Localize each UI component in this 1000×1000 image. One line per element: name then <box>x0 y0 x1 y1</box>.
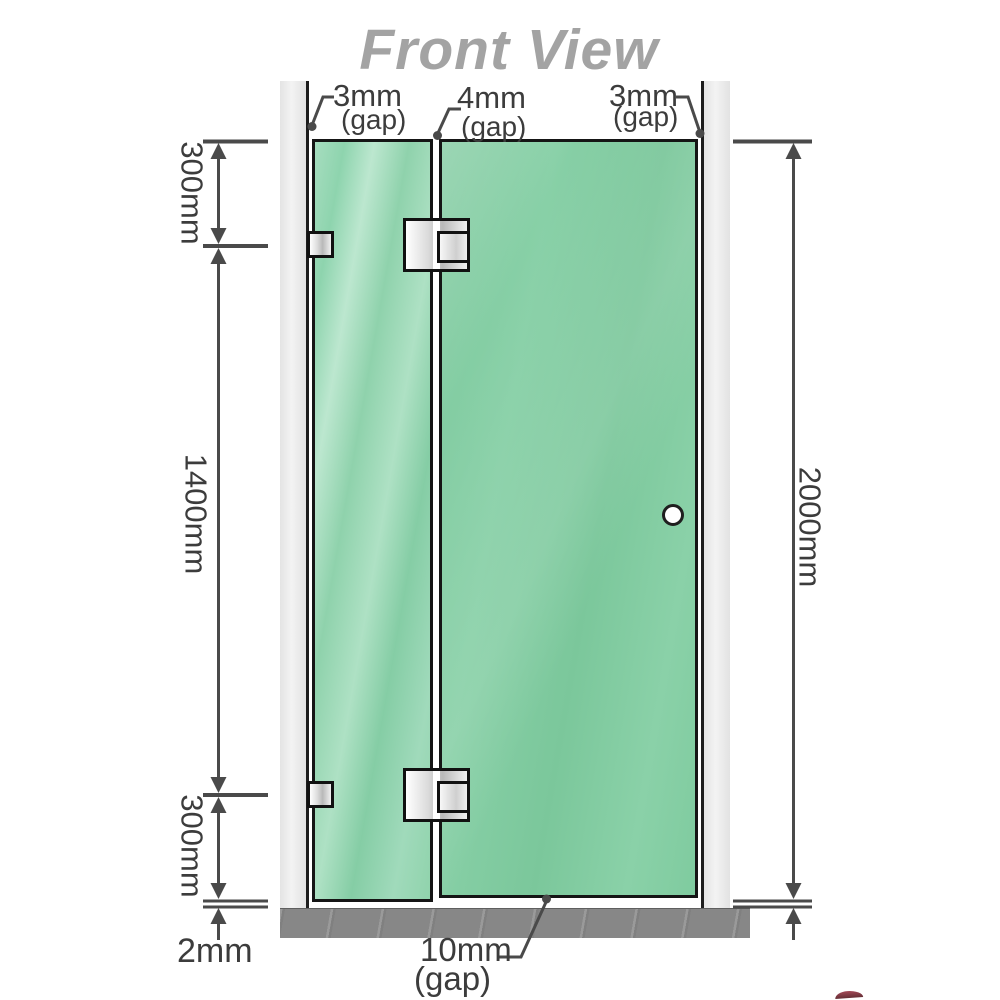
gap-label-bottom-unit: (gap) <box>414 962 491 997</box>
dimension-lines <box>0 0 1000 1000</box>
gap-label-top-mid-value: 4mm <box>457 82 526 115</box>
front-view-diagram: Front View <box>0 0 1000 1000</box>
dim-label-1400mm: 1400mm <box>181 454 212 575</box>
dim-label-2000mm: 2000mm <box>795 467 826 588</box>
dimension-arrows <box>211 143 802 940</box>
extension-ticks <box>203 142 812 908</box>
dim-label-300mm-top: 300mm <box>177 141 208 244</box>
gap-label-top-left-unit: (gap) <box>341 105 406 134</box>
gap-label-top-right-unit: (gap) <box>613 102 678 131</box>
leader-dots <box>308 122 705 904</box>
dim-label-300mm-bottom: 300mm <box>177 794 208 897</box>
leader-lines <box>313 97 700 957</box>
gap-label-top-mid-unit: (gap) <box>461 112 526 141</box>
floor-clearance-label: 2mm <box>177 934 253 970</box>
